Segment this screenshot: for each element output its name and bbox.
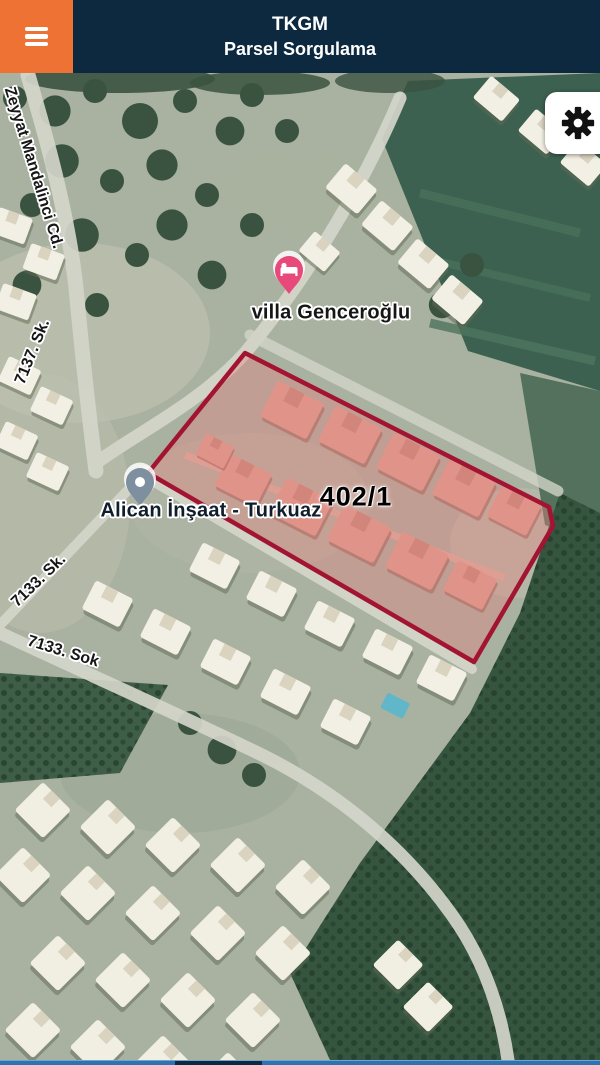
map-viewport[interactable]: Zeyyat Mandalinci Cd. 7137. Sk. 7133. Sk…	[0, 73, 600, 1060]
app-screen: Zeyyat Mandalinci Cd. 7137. Sk. 7133. Sk…	[0, 0, 600, 1065]
menu-button[interactable]	[0, 0, 73, 73]
bottom-bar	[0, 1060, 600, 1065]
app-subtitle: Parsel Sorgulama	[224, 40, 376, 58]
settings-button[interactable]	[545, 92, 600, 154]
gear-icon	[559, 104, 597, 142]
hamburger-icon	[25, 27, 48, 47]
satellite-map-canvas	[0, 73, 600, 1060]
bottom-bar-segment	[175, 1061, 262, 1065]
app-title: TKGM	[272, 15, 328, 34]
app-header: TKGM Parsel Sorgulama	[0, 0, 600, 73]
